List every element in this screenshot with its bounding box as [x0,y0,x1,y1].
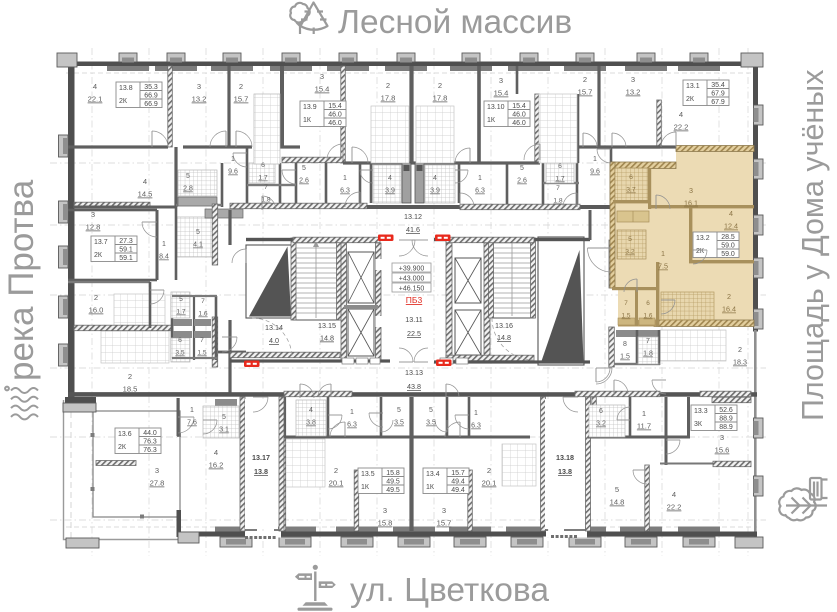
svg-text:76.3: 76.3 [143,447,157,454]
svg-text:2: 2 [239,82,243,91]
svg-text:5: 5 [196,229,200,236]
svg-text:16.0: 16.0 [89,306,104,315]
svg-text:14.8: 14.8 [610,498,625,507]
svg-text:35.4: 35.4 [711,82,725,89]
svg-text:1: 1 [661,249,665,258]
svg-text:1.6: 1.6 [198,311,208,318]
svg-text:1.5: 1.5 [620,354,630,361]
svg-text:28.5: 28.5 [721,234,735,241]
svg-text:13.3: 13.3 [694,408,708,415]
svg-text:13.15: 13.15 [318,321,336,330]
svg-text:15.8: 15.8 [378,519,393,528]
svg-text:52.6: 52.6 [719,407,733,414]
svg-text:1.8: 1.8 [553,198,563,205]
svg-text:1: 1 [593,156,597,163]
svg-text:66.9: 66.9 [144,101,158,108]
svg-text:6.3: 6.3 [340,188,350,195]
svg-text:ПБ3: ПБ3 [406,295,423,305]
svg-text:1.5: 1.5 [197,350,207,357]
svg-text:3: 3 [720,433,724,442]
svg-text:+46.150: +46.150 [399,285,425,292]
svg-text:6: 6 [261,162,265,169]
svg-text:13.5: 13.5 [361,471,375,478]
svg-text:7: 7 [624,300,628,307]
svg-text:5: 5 [186,173,190,180]
svg-text:16.4: 16.4 [722,305,736,314]
svg-text:5: 5 [615,485,619,494]
svg-text:6: 6 [599,408,603,415]
svg-text:6: 6 [646,300,650,307]
svg-text:15.4: 15.4 [494,89,509,98]
svg-text:14.5: 14.5 [138,190,153,199]
svg-text:12.8: 12.8 [86,223,101,232]
svg-text:13.16: 13.16 [495,321,513,330]
svg-text:66.9: 66.9 [144,93,158,100]
svg-text:13.8: 13.8 [254,467,268,476]
svg-text:15.6: 15.6 [715,446,730,455]
svg-text:3: 3 [155,466,159,475]
svg-text:7: 7 [200,337,204,344]
svg-text:9.6: 9.6 [590,169,600,176]
svg-text:3.5: 3.5 [175,350,185,357]
svg-text:15.4: 15.4 [512,103,526,110]
svg-text:2К: 2К [686,96,695,103]
svg-text:35.3: 35.3 [144,84,158,91]
svg-text:3: 3 [499,76,503,85]
svg-text:3: 3 [383,506,387,515]
svg-text:7.6: 7.6 [187,420,197,427]
svg-text:1.6: 1.6 [644,313,653,320]
svg-text:5: 5 [302,165,306,172]
svg-text:22.2: 22.2 [674,123,689,132]
svg-text:14.8: 14.8 [497,333,511,342]
svg-text:2: 2 [738,345,742,354]
svg-text:1: 1 [474,410,478,417]
svg-text:3.5: 3.5 [426,420,436,427]
svg-text:4.0: 4.0 [269,336,279,345]
svg-text:1: 1 [343,175,347,182]
svg-text:18.3: 18.3 [733,358,747,367]
svg-text:ул. Цветкова: ул. Цветкова [350,572,549,609]
svg-text:7: 7 [556,185,560,192]
svg-text:7: 7 [201,298,205,305]
svg-text:3: 3 [631,75,635,84]
svg-text:4.1: 4.1 [193,242,203,249]
svg-text:14.8: 14.8 [320,334,334,343]
svg-text:2: 2 [438,81,442,90]
svg-text:6: 6 [558,163,562,170]
svg-text:3К: 3К [694,421,703,428]
svg-text:1: 1 [162,241,166,248]
svg-text:13.2: 13.2 [696,235,710,242]
svg-text:4: 4 [729,209,733,218]
svg-text:20.1: 20.1 [329,479,344,488]
svg-text:15.7: 15.7 [437,519,452,528]
svg-text:3.2: 3.2 [625,249,635,256]
svg-text:1: 1 [478,175,482,182]
svg-text:22.1: 22.1 [88,95,103,104]
svg-text:13.8: 13.8 [558,467,572,476]
svg-text:16.2: 16.2 [209,461,224,470]
svg-text:15.7: 15.7 [451,470,465,477]
svg-text:+39.900: +39.900 [399,265,425,272]
svg-text:1: 1 [642,409,646,418]
svg-text:67.9: 67.9 [711,91,725,98]
svg-text:15.4: 15.4 [315,85,330,94]
svg-text:6.3: 6.3 [347,422,357,429]
svg-text:17.8: 17.8 [433,94,448,103]
svg-text:13.1: 13.1 [686,83,700,90]
svg-text:46.0: 46.0 [512,112,526,119]
svg-text:3: 3 [197,82,201,91]
svg-text:22.2: 22.2 [667,503,682,512]
svg-text:7.5: 7.5 [658,262,668,271]
svg-text:2К: 2К [119,98,128,105]
svg-text:1.7: 1.7 [555,176,565,183]
svg-text:4: 4 [433,175,437,182]
svg-text:44.0: 44.0 [143,430,157,437]
svg-text:2: 2 [727,292,731,301]
svg-text:1: 1 [231,156,235,163]
svg-text:Лесной массив: Лесной массив [338,4,572,41]
svg-text:1.8: 1.8 [261,197,271,204]
svg-text:2: 2 [583,75,587,84]
svg-text:59.1: 59.1 [119,255,133,262]
svg-text:3.9: 3.9 [385,188,395,195]
svg-text:3.1: 3.1 [219,427,229,434]
svg-text:13.13: 13.13 [405,368,423,377]
svg-text:59.1: 59.1 [119,247,133,254]
svg-text:49.4: 49.4 [451,479,465,486]
svg-text:11.7: 11.7 [637,422,651,431]
svg-text:49.5: 49.5 [386,479,400,486]
svg-text:88.9: 88.9 [719,416,733,423]
svg-text:4: 4 [143,177,147,186]
svg-text:59.0: 59.0 [721,251,735,258]
svg-text:4: 4 [388,175,392,182]
svg-text:8: 8 [623,341,627,348]
svg-text:9.6: 9.6 [228,169,238,176]
svg-text:13.6: 13.6 [118,431,132,438]
svg-text:13.12: 13.12 [404,212,422,221]
svg-text:5: 5 [179,296,183,303]
svg-text:2: 2 [128,372,132,381]
svg-text:76.3: 76.3 [143,439,157,446]
svg-text:+43.000: +43.000 [399,275,425,282]
svg-text:13.4: 13.4 [426,471,440,478]
svg-text:1: 1 [350,409,354,416]
svg-text:1К: 1К [303,117,312,124]
svg-text:2.8: 2.8 [183,186,193,193]
svg-text:2.6: 2.6 [517,178,527,185]
svg-text:3.8: 3.8 [306,420,316,427]
svg-text:4: 4 [93,82,97,91]
svg-text:13.9: 13.9 [303,104,317,111]
svg-text:2К: 2К [696,248,705,255]
svg-text:3.7: 3.7 [626,187,636,194]
svg-text:46.0: 46.0 [328,120,342,127]
svg-text:13.18: 13.18 [556,453,574,462]
svg-text:16.1: 16.1 [684,199,698,208]
svg-text:67.9: 67.9 [711,99,725,106]
svg-text:река Протва: река Протва [2,179,41,381]
svg-text:13.7: 13.7 [94,239,108,246]
svg-text:3.5: 3.5 [394,420,404,427]
svg-text:18.5: 18.5 [123,385,138,394]
svg-text:5: 5 [429,407,433,414]
svg-text:1: 1 [190,407,194,414]
svg-text:46.0: 46.0 [328,112,342,119]
svg-text:1.7: 1.7 [176,309,186,316]
svg-text:15.7: 15.7 [578,88,593,97]
svg-text:1.7: 1.7 [258,175,268,182]
svg-text:12.4: 12.4 [724,222,738,231]
svg-text:17.8: 17.8 [381,94,396,103]
svg-text:4: 4 [214,448,218,457]
svg-text:46.0: 46.0 [512,120,526,127]
svg-text:2.6: 2.6 [299,178,309,185]
svg-text:49.4: 49.4 [451,487,465,494]
svg-text:13.17: 13.17 [252,453,270,462]
svg-text:1К: 1К [426,484,435,491]
svg-text:6: 6 [178,337,182,344]
svg-text:13.2: 13.2 [192,95,207,104]
svg-text:5: 5 [397,407,401,414]
svg-text:6.3: 6.3 [475,188,485,195]
svg-text:15.4: 15.4 [328,103,342,110]
svg-text:1.5: 1.5 [622,313,631,320]
svg-text:27.3: 27.3 [119,238,133,245]
svg-text:15.8: 15.8 [386,470,400,477]
svg-text:15.7: 15.7 [234,95,249,104]
svg-text:5: 5 [222,414,226,421]
svg-text:2: 2 [386,81,390,90]
svg-text:2: 2 [487,466,491,475]
svg-text:3: 3 [689,186,693,195]
svg-text:2К: 2К [94,252,103,259]
svg-text:4: 4 [309,407,313,414]
svg-text:2К: 2К [118,444,127,451]
svg-text:88.9: 88.9 [719,424,733,431]
svg-text:Площадь у Дома учёных: Площадь у Дома учёных [796,70,830,421]
svg-text:5: 5 [628,236,632,243]
svg-text:3: 3 [91,210,95,219]
svg-text:2: 2 [94,293,98,302]
svg-text:4: 4 [679,110,683,119]
svg-text:3.9: 3.9 [430,188,440,195]
svg-text:3: 3 [442,506,446,515]
svg-text:5: 5 [520,165,524,172]
svg-text:13.10: 13.10 [487,104,505,111]
svg-text:7: 7 [646,338,650,345]
svg-text:4: 4 [672,490,676,499]
svg-text:41.6: 41.6 [406,225,420,234]
svg-text:20.1: 20.1 [482,479,497,488]
svg-text:6.3: 6.3 [471,423,481,430]
svg-text:13.8: 13.8 [119,85,133,92]
svg-text:7: 7 [264,184,268,191]
svg-text:1К: 1К [361,484,370,491]
svg-text:3: 3 [320,72,324,81]
svg-text:43.8: 43.8 [407,382,421,391]
svg-text:1К: 1К [487,117,496,124]
svg-text:6: 6 [629,174,633,181]
svg-text:27.8: 27.8 [150,479,165,488]
svg-text:13.11: 13.11 [405,315,422,324]
svg-text:59.0: 59.0 [721,243,735,250]
svg-text:13.2: 13.2 [626,88,641,97]
svg-text:2: 2 [334,466,338,475]
svg-text:22.5: 22.5 [407,329,421,338]
svg-text:49.5: 49.5 [386,487,400,494]
svg-text:13.14: 13.14 [265,323,283,332]
svg-text:8.4: 8.4 [159,254,169,261]
svg-text:1.8: 1.8 [643,351,653,358]
svg-text:3.2: 3.2 [596,421,606,428]
